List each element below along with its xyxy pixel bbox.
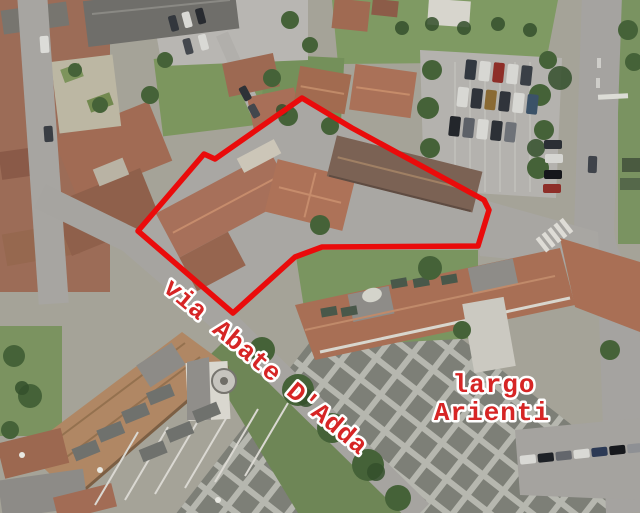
square-name-label-line2: Arienti xyxy=(434,398,550,428)
square-name-label-line1: largo xyxy=(452,370,535,400)
aerial-photo: via Abate D'Adda largo Arienti xyxy=(0,0,640,513)
aerial-map: via Abate D'Adda largo Arienti xyxy=(0,0,640,513)
